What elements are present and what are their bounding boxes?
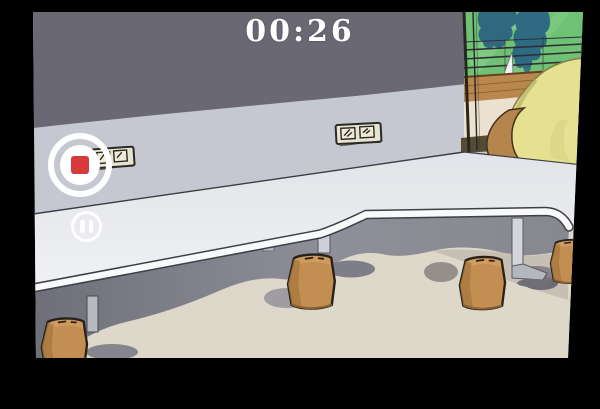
- stop-recording-button[interactable]: [48, 133, 112, 197]
- stop-icon: [71, 156, 89, 174]
- stool: [288, 255, 335, 310]
- recording-timer: 00:26: [245, 17, 355, 47]
- stool-shadow: [424, 262, 458, 282]
- desk-leg: [87, 296, 98, 332]
- stop-button-disc: [60, 145, 100, 185]
- camera-viewfinder-scene: [0, 0, 600, 409]
- tree-silhouette: [523, 59, 531, 73]
- power-outlet: [336, 123, 383, 146]
- pause-icon: [80, 220, 85, 233]
- pause-icon: [89, 220, 94, 233]
- stool: [551, 240, 588, 284]
- stool: [460, 257, 505, 310]
- stool-shadow: [86, 344, 138, 360]
- stool: [42, 318, 87, 371]
- camera-recorder-app: 00:26: [0, 0, 600, 409]
- pause-button[interactable]: [71, 211, 102, 242]
